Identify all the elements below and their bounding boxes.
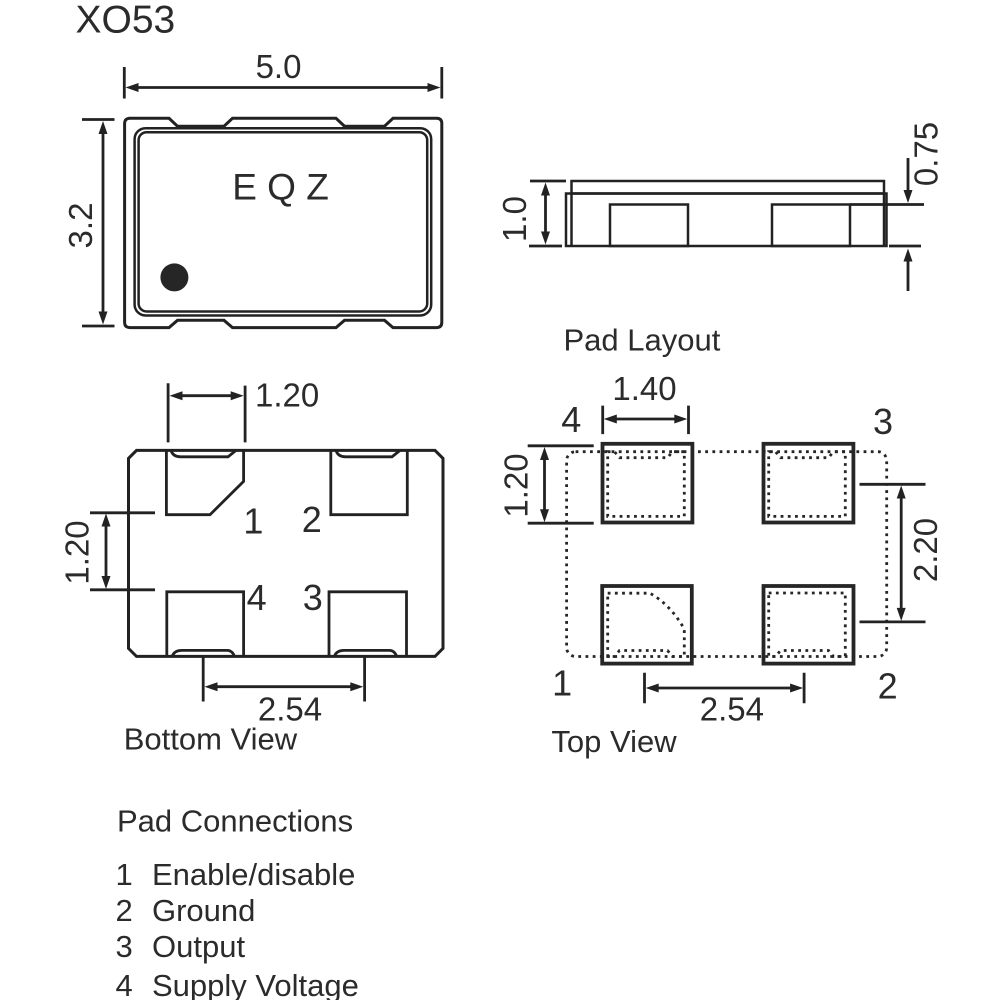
svg-text:Pad Layout: Pad Layout (564, 323, 721, 358)
svg-text:4: 4 (561, 399, 581, 440)
svg-text:4: 4 (116, 968, 133, 1000)
svg-text:4: 4 (247, 577, 267, 618)
svg-text:XO53: XO53 (76, 0, 176, 42)
svg-text:Ground: Ground (152, 893, 255, 928)
svg-text:1.0: 1.0 (496, 196, 533, 242)
svg-text:3: 3 (116, 929, 133, 964)
svg-text:2: 2 (878, 666, 898, 707)
svg-text:Bottom View: Bottom View (124, 722, 298, 757)
svg-text:3.2: 3.2 (62, 203, 99, 249)
svg-text:1.20: 1.20 (498, 453, 535, 517)
svg-text:3: 3 (303, 577, 323, 618)
svg-text:Top View: Top View (551, 724, 677, 759)
svg-text:Pad Connections: Pad Connections (117, 804, 353, 839)
svg-text:1: 1 (243, 501, 263, 542)
svg-text:1: 1 (552, 663, 572, 704)
svg-text:2: 2 (302, 499, 322, 540)
svg-text:5.0: 5.0 (256, 48, 302, 85)
svg-text:2.54: 2.54 (700, 690, 764, 727)
svg-text:Output: Output (152, 929, 245, 964)
svg-text:1.20: 1.20 (255, 377, 319, 414)
svg-text:1: 1 (116, 857, 133, 892)
svg-text:2.20: 2.20 (907, 518, 944, 582)
svg-text:0.75: 0.75 (908, 122, 945, 186)
svg-text:Supply Voltage: Supply Voltage (152, 968, 359, 1000)
svg-text:Enable/disable: Enable/disable (152, 857, 355, 892)
svg-text:E Q Z: E Q Z (232, 166, 329, 207)
svg-text:1.20: 1.20 (59, 520, 96, 584)
svg-text:2: 2 (116, 893, 133, 928)
svg-text:1.40: 1.40 (612, 370, 676, 407)
svg-text:3: 3 (873, 401, 893, 442)
